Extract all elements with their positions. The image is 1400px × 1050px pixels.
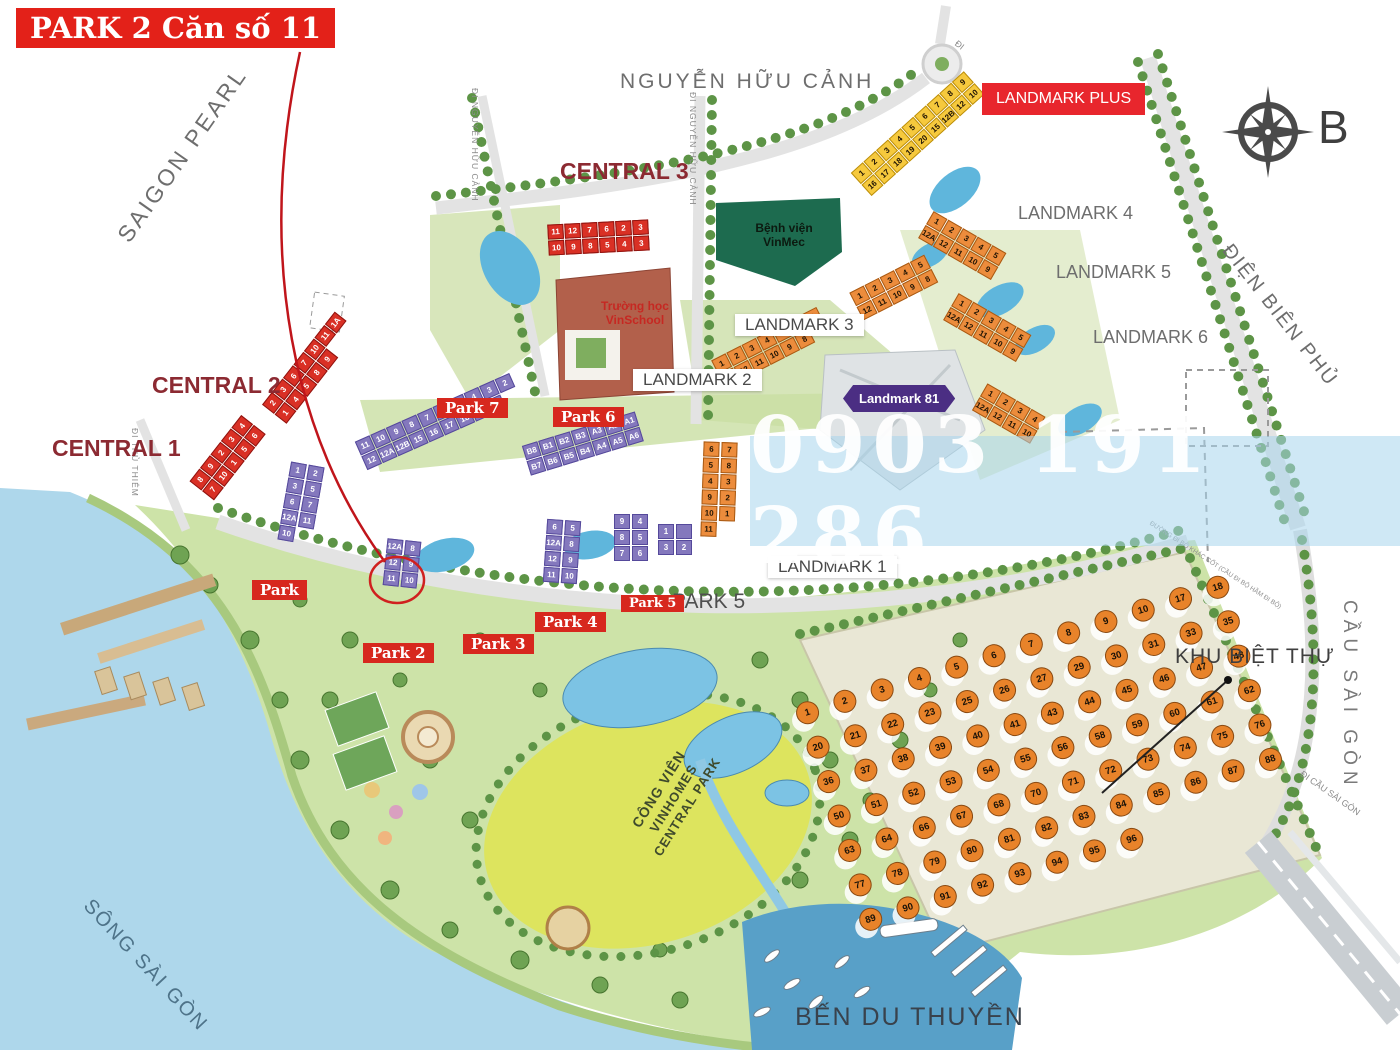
villa-marker[interactable]: 31 — [1139, 630, 1168, 659]
badge-park-7[interactable]: Park 7 — [437, 398, 508, 418]
villa-marker[interactable]: 71 — [1059, 768, 1088, 797]
unit-cell[interactable]: 6 — [598, 221, 615, 237]
villa-marker[interactable]: 82 — [1032, 813, 1061, 842]
unit-cell[interactable]: 2 — [615, 220, 632, 236]
villa-marker[interactable]: 22 — [878, 710, 907, 739]
villa-marker[interactable]: 38 — [889, 744, 918, 773]
villa-marker[interactable]: 51 — [862, 790, 891, 819]
phone-watermark: 0903 191 286 — [750, 436, 1400, 546]
unit-cell[interactable]: 1 — [719, 506, 736, 522]
villa-marker[interactable]: 73 — [1134, 745, 1163, 774]
park-3-building[interactable]: 6512A81291110 — [543, 519, 582, 584]
unit-cell[interactable]: 10 — [701, 505, 718, 521]
villa-marker[interactable]: 41 — [1001, 710, 1030, 739]
street-nguyen-huu-canh: NGUYỄN HỮU CẢNH — [620, 70, 874, 94]
villa-marker[interactable]: 87 — [1219, 756, 1248, 785]
villa-marker[interactable]: 58 — [1086, 722, 1115, 751]
villa-zone-label: KHU BIỆT THỰ — [1175, 645, 1335, 669]
villa-marker[interactable]: 35 — [1214, 607, 1243, 636]
phone-number: 0903 191 286 — [750, 400, 1400, 582]
unit-cell[interactable]: 4 — [632, 514, 648, 529]
villa-marker[interactable]: 70 — [1022, 779, 1051, 808]
villa-marker[interactable]: 25 — [953, 687, 982, 716]
villa-marker[interactable]: 53 — [937, 767, 966, 796]
badge-park-5[interactable]: Park 5 — [621, 595, 684, 612]
villa-marker[interactable]: 39 — [926, 733, 955, 762]
unit-cell[interactable]: 11 — [547, 224, 564, 240]
unit-cell[interactable]: 11 — [383, 570, 400, 587]
villa-marker[interactable]: 93 — [1006, 859, 1035, 888]
unit-cell[interactable]: 3 — [658, 540, 674, 555]
unit-cell[interactable]: 5 — [599, 237, 616, 253]
unit-cell[interactable]: 7 — [301, 496, 319, 514]
unit-cell[interactable]: 11 — [298, 512, 316, 530]
unit-cell[interactable]: 11 — [543, 567, 560, 583]
unit-cell[interactable]: 8 — [614, 530, 630, 545]
villa-marker[interactable]: 86 — [1181, 768, 1210, 797]
villa-marker[interactable]: 89 — [856, 905, 885, 934]
badge-park-3[interactable]: Park 3 — [463, 634, 534, 654]
vinmec-label-line1: Bệnh viện — [742, 222, 826, 236]
villa-marker[interactable]: 4 — [905, 664, 934, 693]
landmark-plus-badge[interactable]: LANDMARK PLUS — [982, 83, 1145, 115]
landmark-5-label: LANDMARK 5 — [1056, 262, 1171, 283]
villa-marker[interactable]: 63 — [835, 836, 864, 865]
landmark-4-label: LANDMARK 4 — [1018, 203, 1133, 224]
unit-cell[interactable]: 12A — [280, 509, 298, 527]
villa-marker[interactable]: 77 — [846, 870, 875, 899]
villa-marker[interactable]: 3 — [868, 676, 897, 705]
central-3-label: CENTRAL 3 — [560, 158, 689, 185]
villa-marker[interactable]: 78 — [883, 859, 912, 888]
villa-marker[interactable]: 67 — [947, 802, 976, 831]
villa-marker[interactable]: 50 — [825, 802, 854, 831]
villa-marker[interactable]: 21 — [841, 721, 870, 750]
villa-marker[interactable]: 74 — [1171, 733, 1200, 762]
villa-marker[interactable]: 80 — [958, 836, 987, 865]
villa-marker[interactable]: 29 — [1065, 653, 1094, 682]
badge-park-6[interactable]: Park 6 — [553, 407, 624, 427]
unit-cell[interactable]: 5 — [564, 520, 581, 536]
villa-marker[interactable]: 52 — [899, 779, 928, 808]
villa-marker[interactable]: 81 — [995, 825, 1024, 854]
villa-marker[interactable]: 56 — [1049, 733, 1078, 762]
unit-cell[interactable]: 7 — [581, 222, 598, 238]
street-cau-sai-gon: CẦU SÀI GÒN — [1338, 600, 1360, 791]
unit-cell[interactable]: 10 — [548, 240, 565, 256]
villa-marker[interactable]: 6 — [980, 641, 1009, 670]
villa-marker[interactable]: 10 — [1129, 596, 1158, 625]
unit-cell[interactable]: 5 — [303, 480, 321, 498]
landmark-1-building[interactable]: 6758439210111 — [700, 441, 738, 537]
villa-marker[interactable]: 83 — [1070, 802, 1099, 831]
villa-marker[interactable]: 79 — [920, 848, 949, 877]
villa-marker[interactable]: 5 — [942, 653, 971, 682]
unit-cell[interactable]: 7 — [721, 442, 738, 458]
villa-marker[interactable]: 2 — [830, 687, 859, 716]
unit-cell[interactable]: 3 — [633, 235, 650, 251]
unit-cell[interactable]: 9 — [614, 514, 630, 529]
villa-marker[interactable]: 85 — [1144, 779, 1173, 808]
unit-cell[interactable]: 3 — [720, 474, 737, 490]
villa-marker[interactable]: 27 — [1028, 664, 1057, 693]
park-5-building[interactable]: 1 32 — [658, 524, 693, 555]
villa-marker[interactable]: 30 — [1102, 642, 1131, 671]
park2-unit11-callout[interactable]: PARK 2 Căn số 11 — [16, 8, 335, 48]
villa-marker[interactable]: 17 — [1166, 584, 1195, 613]
unit-cell[interactable]: 1 — [289, 462, 307, 480]
unit-cell[interactable]: 4 — [616, 236, 633, 252]
badge-park-1[interactable]: Park — [252, 580, 307, 600]
villa-marker[interactable]: 96 — [1117, 825, 1146, 854]
villa-marker[interactable]: 36 — [814, 767, 843, 796]
unit-cell[interactable]: 8 — [404, 540, 421, 557]
unit-cell[interactable]: 1 — [658, 524, 674, 539]
unit-cell[interactable]: 10 — [277, 525, 295, 543]
villa-marker[interactable]: 88 — [1256, 745, 1285, 774]
villa-marker[interactable]: 62 — [1235, 676, 1264, 705]
villa-marker[interactable]: 64 — [873, 825, 902, 854]
unit-cell[interactable] — [676, 524, 692, 539]
villa-marker[interactable]: 7 — [1017, 630, 1046, 659]
villa-marker[interactable]: 23 — [916, 699, 945, 728]
site-map: 11127623 1098543 236710111A 14589 89234 … — [0, 0, 1400, 1050]
villa-marker[interactable]: 76 — [1246, 711, 1275, 740]
unit-cell[interactable]: 2 — [306, 465, 324, 483]
unit-cell[interactable]: 6 — [283, 493, 301, 511]
vinmec-label-line2: VinMec — [742, 236, 826, 250]
badge-park-2[interactable]: Park 2 — [363, 643, 434, 663]
central-2-label: CENTRAL 2 — [152, 372, 281, 399]
street-di-nguyen-huu-canh-2: ĐI NGUYỄN HỮU CẢNH — [688, 92, 698, 206]
central-1-label: CENTRAL 1 — [52, 435, 181, 462]
villa-marker[interactable]: 84 — [1107, 791, 1136, 820]
villa-marker[interactable]: 92 — [968, 871, 997, 900]
unit-cell[interactable]: 8 — [721, 458, 738, 474]
unit-cell[interactable]: 12A — [386, 538, 403, 555]
unit-cell[interactable]: 6 — [703, 441, 720, 457]
villa-marker[interactable]: 33 — [1177, 619, 1206, 648]
vinschool-label-line2: VinSchool — [592, 314, 678, 328]
unit-cell[interactable]: 10 — [561, 568, 578, 584]
villa-marker[interactable]: 9 — [1092, 607, 1121, 636]
villa-marker[interactable]: 91 — [931, 882, 960, 911]
villa-marker[interactable]: 40 — [963, 722, 992, 751]
unit-cell[interactable]: 9 — [565, 239, 582, 255]
vinmec-label: Bệnh viện VinMec — [742, 222, 826, 250]
vinschool-label-line1: Trường học — [592, 300, 678, 314]
compass-north-label: B — [1318, 100, 1349, 154]
unit-cell[interactable]: 11 — [700, 521, 717, 537]
villa-marker[interactable]: 75 — [1208, 722, 1237, 751]
villa-marker[interactable]: 72 — [1096, 756, 1125, 785]
unit-cell[interactable]: 2 — [676, 540, 692, 555]
villa-marker[interactable]: 44 — [1075, 687, 1104, 716]
badge-park-4[interactable]: Park 4 — [535, 612, 606, 632]
villa-marker[interactable]: 94 — [1043, 848, 1072, 877]
unit-cell[interactable]: 10 — [401, 572, 418, 589]
park-4-building[interactable]: 948576 — [614, 514, 649, 561]
villa-marker[interactable]: 45 — [1113, 676, 1142, 705]
park-2-building[interactable]: 12A81291110 — [383, 538, 423, 588]
landmark-2-label: LANDMARK 2 — [633, 369, 762, 391]
unit-cell[interactable]: 5 — [703, 457, 720, 473]
unit-cell[interactable]: 3 — [286, 477, 304, 495]
unit-cell[interactable]: 2 — [719, 490, 736, 506]
unit-cell[interactable]: 8 — [582, 238, 599, 254]
villa-marker[interactable]: 95 — [1080, 837, 1109, 866]
villa-marker[interactable]: 20 — [804, 733, 833, 762]
unit-cell[interactable]: 6 — [632, 546, 648, 561]
villa-marker[interactable]: 55 — [1011, 745, 1040, 774]
street-di-nguyen-huu-canh-1: ĐI NGUYỄN HỮU CẢNH — [470, 88, 480, 202]
unit-cell[interactable]: 4 — [702, 473, 719, 489]
unit-cell[interactable]: 12 — [564, 223, 581, 239]
central-3-building[interactable]: 11127623 1098543 — [547, 219, 650, 256]
villa-marker[interactable]: 90 — [894, 894, 923, 923]
villa-marker[interactable]: 66 — [910, 813, 939, 842]
unit-cell[interactable]: 6 — [546, 519, 563, 535]
villa-marker[interactable]: 8 — [1054, 619, 1083, 648]
unit-cell[interactable]: 8 — [563, 536, 580, 552]
villa-marker[interactable]: 26 — [990, 676, 1019, 705]
villa-marker[interactable]: 60 — [1160, 699, 1189, 728]
marina-label: BẾN DU THUYỀN — [780, 1003, 1040, 1032]
villa-marker[interactable]: 1 — [793, 698, 822, 727]
landmark-6-label: LANDMARK 6 — [1093, 327, 1208, 348]
unit-cell[interactable]: 12 — [384, 554, 401, 571]
unit-cell[interactable]: 12A — [545, 535, 562, 551]
vinschool-label: Trường học VinSchool — [592, 300, 678, 328]
unit-cell[interactable]: 3 — [632, 219, 649, 235]
villa-marker[interactable]: 37 — [852, 756, 881, 785]
villa-marker[interactable]: 54 — [974, 756, 1003, 785]
unit-cell[interactable]: 9 — [402, 556, 419, 573]
unit-cell[interactable]: 9 — [701, 489, 718, 505]
unit-cell[interactable]: 9 — [562, 552, 579, 568]
landmark-3-label: LANDMARK 3 — [735, 314, 864, 336]
villa-marker[interactable]: 43 — [1038, 699, 1067, 728]
unit-cell[interactable]: 5 — [632, 530, 648, 545]
compass-icon — [1222, 86, 1314, 178]
unit-cell[interactable]: 7 — [614, 546, 630, 561]
unit-cell[interactable]: 12 — [544, 551, 561, 567]
villa-marker[interactable]: 59 — [1123, 710, 1152, 739]
villa-marker[interactable]: 68 — [984, 790, 1013, 819]
villa-marker[interactable]: 61 — [1198, 688, 1227, 717]
